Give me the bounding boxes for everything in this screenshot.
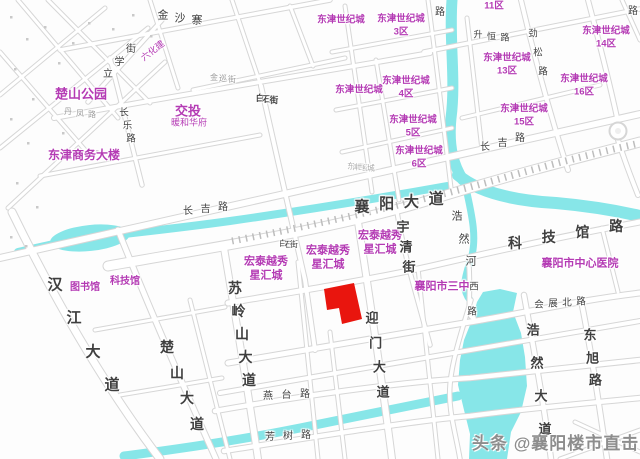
road-label: 金 [210,74,218,82]
road-label: 长 [119,108,129,118]
poi-label: 东津世纪城 [317,15,365,25]
road-label: 山 [235,327,249,341]
poi-label: 4区 [399,89,414,99]
poi-label: 14区 [596,39,616,49]
road-label: 道 [242,373,256,387]
road-label: 会 [534,300,544,310]
poi-label: 东津世纪城 [335,85,383,95]
poi-label: 16区 [574,87,594,97]
poi-label: 宏泰越秀 [306,246,350,257]
road-label: 苏 [228,281,242,295]
road-label: 江 [66,311,81,326]
road-label: 道 [190,417,204,431]
road-label: 路 [300,390,310,400]
road-label: 吉 [201,205,211,215]
poi-label: 东津世纪城 [500,104,548,114]
road-label: 升 [473,31,482,40]
road-label: 山 [170,366,184,380]
poi-label: 科技馆 [110,277,140,287]
road-label: 立 [103,70,113,80]
poi-label: 交投 [175,105,201,118]
road-label: 路 [628,7,638,17]
road-label: 恒 [487,32,496,41]
road-label: 门 [369,336,382,349]
road-label: 北 [562,298,572,308]
road-label: 松 [533,48,543,58]
road-label: 路 [538,67,548,77]
road-label: 长 [183,207,193,217]
road-label: 然 [530,357,543,370]
poi-label: 宏泰越秀 [244,257,288,268]
road-label: 街 [126,45,136,55]
road-label: 路 [218,203,228,213]
road-label: 大 [404,194,419,209]
poi-label: 东津世纪城 [483,53,531,63]
road-label: 路 [589,374,602,387]
poi-label: 3区 [394,27,409,37]
road-label: 台 [282,391,292,401]
poi-label: 13区 [497,66,517,76]
road-label: 凤 [76,110,84,118]
road-label: 路 [500,34,509,43]
road-label: 劲 [528,29,538,39]
road-label: 东 [583,329,596,342]
road-label: 城 [367,165,375,173]
road-label: 乐 [123,121,133,131]
poi-label: 东津世纪城 [560,74,608,84]
road-label: 学 [115,58,125,68]
poi-label: 星汇城 [364,245,397,256]
road-label: 阳 [379,197,394,212]
road-label: 沙 [175,13,186,24]
poi-label: 星汇城 [250,271,283,282]
road-label: 大 [534,390,547,403]
poi-label: 楚山公园 [55,88,107,101]
road-label: 路 [576,297,586,307]
road-label: 树 [283,432,293,442]
poi-label: 东津商务大楼 [48,149,120,161]
map-container[interactable]: 楚山公园东津商务大楼交投暖和华府六化建图书馆科技馆东津世纪城东津世纪城3区11区… [0,0,640,459]
road-label: 街 [270,96,279,105]
road-label: 丹 [64,108,72,116]
watermark: 头条 @襄阳楼市直击 [472,429,639,454]
road-label: 道 [429,191,444,206]
road-label: 巡 [219,75,227,83]
road-label: 大 [85,344,100,359]
road-label: 长 [480,143,490,153]
road-label: 岭 [232,304,246,318]
poi-label: 宏泰越秀 [358,231,402,242]
road-label: 大 [180,391,194,405]
road-label: 路 [88,111,96,119]
poi-label: 5区 [406,128,421,138]
poi-label: 东津世纪城 [582,26,630,36]
poi-label: 15区 [514,117,534,127]
poi-label: 暖和华府 [171,119,207,128]
road-label: 旭 [586,351,599,364]
road-label: 宇 [396,221,409,234]
road-label: 路 [126,134,136,144]
road-label: 街 [290,241,298,249]
poi-label: 东津世纪城 [377,14,425,24]
poi-label: 六化建 [140,39,167,63]
road-label: 浩 [526,324,539,337]
road-label: 路 [435,8,445,18]
road-label: 迎 [365,312,378,325]
road-label: 然 [459,234,470,245]
road-label: 路 [467,307,477,317]
poi-label: 襄阳市三中 [415,282,470,293]
road-label: 街 [402,261,415,274]
road-label: 路 [609,219,623,233]
road-label: 道 [377,386,390,399]
road-label: 襄 [354,200,369,215]
road-label: 吉 [498,139,508,149]
poi-label: 6区 [412,159,427,169]
road-label: 燕 [263,392,273,402]
road-label: 街 [228,76,236,84]
map-labels-layer: 楚山公园东津商务大楼交投暖和华府六化建图书馆科技馆东津世纪城东津世纪城3区11区… [0,0,640,459]
road-label: 清 [399,241,412,254]
road-label: 道 [104,377,119,392]
road-label: 大 [239,350,253,364]
road-label: 大 [373,361,386,374]
road-label: 路 [301,431,311,441]
road-label: 西 [469,282,479,292]
road-label: 河 [466,257,477,268]
poi-label: 东津世纪城 [389,115,437,125]
road-label: 技 [542,230,556,244]
poi-label: 襄阳市中心医院 [542,259,619,270]
road-label: 科 [508,236,522,250]
road-label: 汉 [47,278,62,293]
road-label: 展 [548,299,558,309]
road-label: 路 [515,134,525,144]
poi-label: 星汇城 [312,260,345,271]
poi-label: 图书馆 [70,283,100,293]
road-label: 芳 [265,433,275,443]
poi-label: 东津世纪城 [382,76,430,86]
poi-label: 11区 [484,1,504,11]
road-label: 浩 [452,212,463,223]
road-label: 楚 [160,340,174,354]
road-label: 馆 [575,225,589,239]
poi-label: 东津世纪城 [395,146,443,156]
road-label: 寨 [192,16,203,27]
road-label: 金 [158,11,169,22]
